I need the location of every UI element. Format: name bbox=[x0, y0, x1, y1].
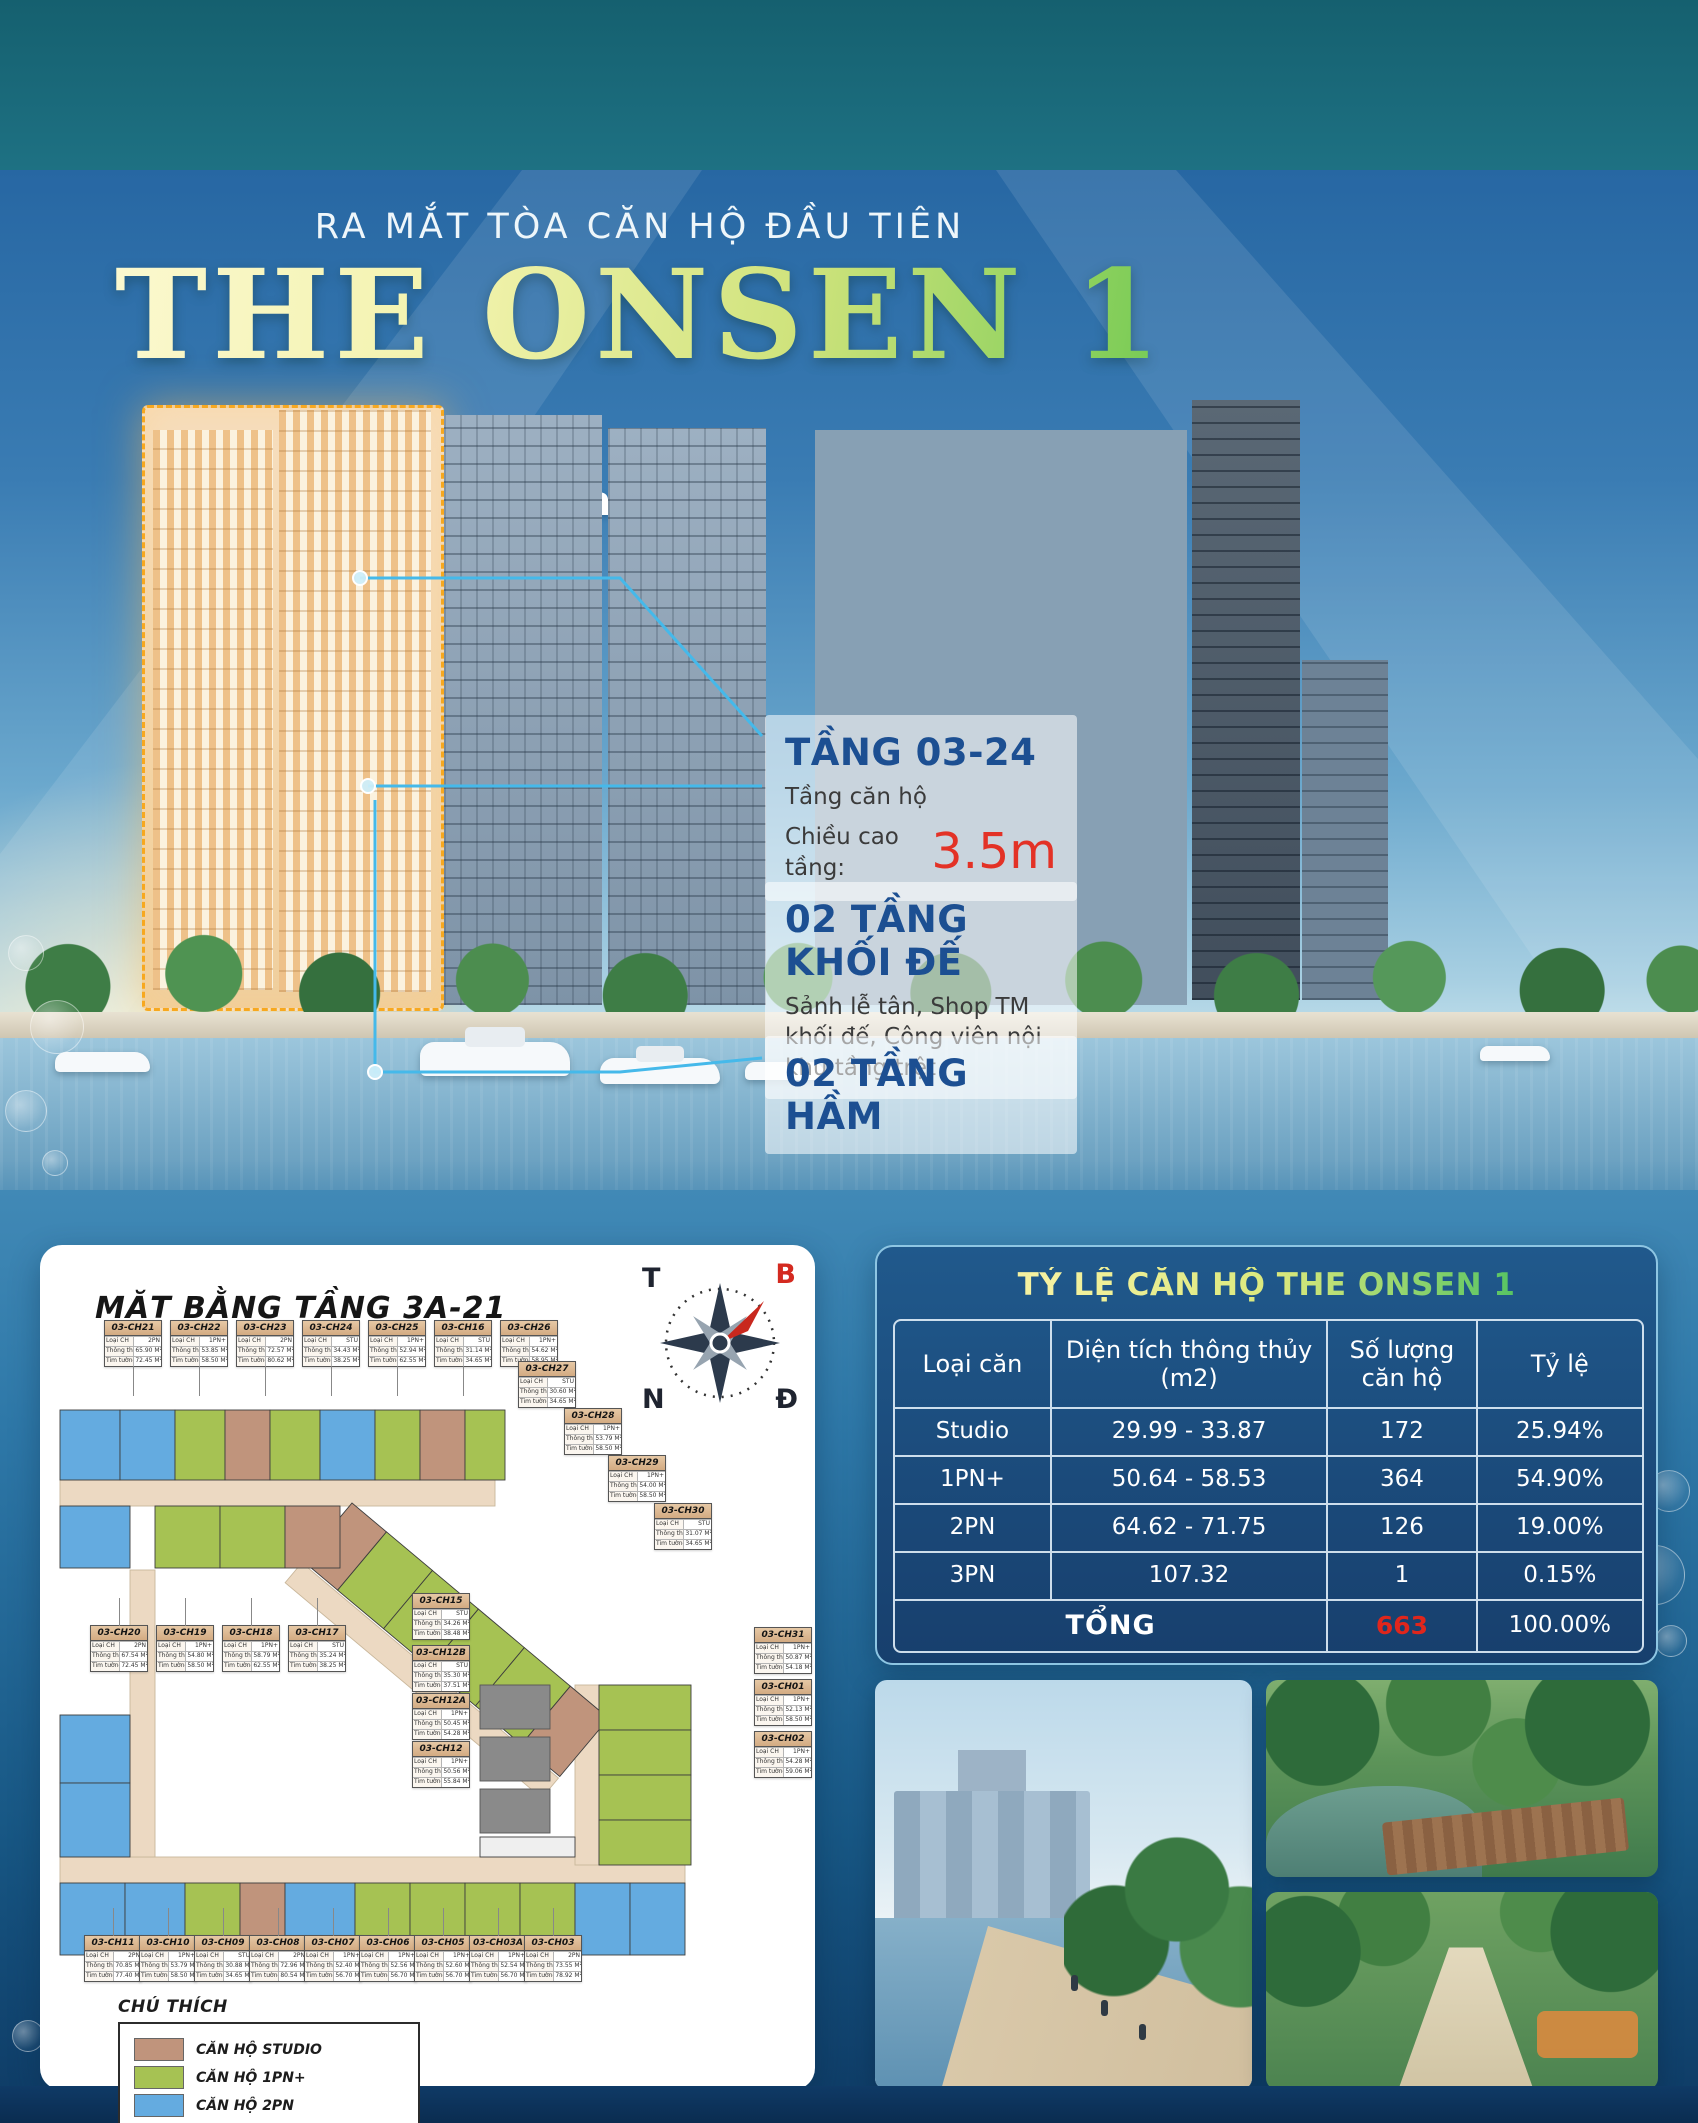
ratio-table-header: Số lượng căn hộ bbox=[1328, 1321, 1477, 1409]
floorplan-panel: MẶT BẰNG TẦNG 3A-21 T B N Đ 03-CH21Loại … bbox=[40, 1245, 815, 2090]
bubble bbox=[30, 1000, 84, 1054]
legend-label: CĂN HỘ STUDIO bbox=[196, 2042, 322, 2058]
unit-label-03-CH11: 03-CH11Loại CH2PNThông thủy70.85 M²Tim t… bbox=[84, 1935, 142, 1982]
photo-riverside-promenade bbox=[875, 1680, 1252, 2090]
unit-label-03-CH12: 03-CH12Loại CH1PN+Thông thủy50.56 M²Tim … bbox=[412, 1741, 470, 1788]
unit-label-03-CH16: 03-CH16Loại CHSTUThông thủy31.14 M²Tim t… bbox=[434, 1320, 492, 1367]
callout-basement-title: 02 TẦNG HẦM bbox=[785, 1052, 1057, 1138]
unit-label-03-CH21: 03-CH21Loại CH2PNThông thủy65.90 M²Tim t… bbox=[104, 1320, 162, 1367]
legend-swatch bbox=[134, 2038, 184, 2061]
unit-label-03-CH02: 03-CH02Loại CH1PN+Thông thủy54.28 M²Tim … bbox=[754, 1731, 812, 1778]
ratio-table-cell-ratio: 54.90% bbox=[1478, 1457, 1642, 1505]
legend-title: CHÚ THÍCH bbox=[118, 1997, 428, 2017]
legend-swatch bbox=[134, 2066, 184, 2089]
callout-podium-title: 02 TẦNG KHỐI ĐẾ bbox=[785, 898, 1057, 984]
unit-label-03-CH17: 03-CH17Loại CHSTUThông thủy35.24 M²Tim t… bbox=[288, 1625, 346, 1672]
unit-label-03-CH15: 03-CH15Loại CHSTUThông thủy34.26 M²Tim t… bbox=[412, 1593, 470, 1640]
callout-floors-title: TẦNG 03-24 bbox=[785, 731, 1057, 774]
poster-canvas: RA MẮT TÒA CĂN HỘ ĐẦU TIÊN THE ONSEN 1 T… bbox=[0, 0, 1698, 2123]
unit-label-03-CH18: 03-CH18Loại CH1PN+Thông thủy58.79 M²Tim … bbox=[222, 1625, 280, 1672]
compass-east: Đ bbox=[775, 1384, 798, 1415]
unit-label-03-CH05: 03-CH05Loại CH1PN+Thông thủy52.60 M²Tim … bbox=[414, 1935, 472, 1982]
unit-label-03-CH03A: 03-CH03ALoại CH1PN+Thông thủy52.54 M²Tim… bbox=[469, 1935, 527, 1982]
callout-floors-line1: Tầng căn hộ bbox=[785, 782, 1057, 812]
ratio-table-cell-ratio: 19.00% bbox=[1478, 1505, 1642, 1553]
unit-label-03-CH09: 03-CH09Loại CHSTUThông thủy30.88 M²Tim t… bbox=[194, 1935, 252, 1982]
bubble bbox=[5, 1090, 47, 1132]
ratio-table-cell-count: 364 bbox=[1328, 1457, 1477, 1505]
compass-north: B bbox=[775, 1259, 796, 1290]
unit-label-03-CH07: 03-CH07Loại CH1PN+Thông thủy52.40 M²Tim … bbox=[304, 1935, 362, 1982]
ratio-table-cell-area: 107.32 bbox=[1052, 1553, 1328, 1601]
ratio-table-title: TỶ LỆ CĂN HỘ THE ONSEN 1 bbox=[877, 1267, 1656, 1303]
ratio-table-panel: TỶ LỆ CĂN HỘ THE ONSEN 1 Loại cănDiện tí… bbox=[875, 1245, 1658, 1665]
unit-label-03-CH03: 03-CH03Loại CH2PNThông thủy73.55 M²Tim t… bbox=[524, 1935, 582, 1982]
legend-label: CĂN HỘ 1PN+ bbox=[196, 2070, 306, 2086]
ratio-table-cell-count: 126 bbox=[1328, 1505, 1477, 1553]
callout-floors-height-value: 3.5m bbox=[931, 820, 1057, 885]
unit-label-03-CH27: 03-CH27Loại CHSTUThông thủy30.60 M²Tim t… bbox=[518, 1361, 576, 1408]
legend-row: CĂN HỘ 2PN bbox=[134, 2094, 404, 2117]
legend-row: CĂN HỘ 1PN+ bbox=[134, 2066, 404, 2089]
bubble bbox=[8, 935, 44, 971]
unit-label-03-CH30: 03-CH30Loại CHSTUThông thủy31.07 M²Tim t… bbox=[654, 1503, 712, 1550]
unit-label-03-CH10: 03-CH10Loại CH1PN+Thông thủy53.79 M²Tim … bbox=[139, 1935, 197, 1982]
ratio-table-cell-area: 50.64 - 58.53 bbox=[1052, 1457, 1328, 1505]
ratio-table-cell-count: 172 bbox=[1328, 1409, 1477, 1457]
floorplan-legend: CHÚ THÍCH CĂN HỘ STUDIOCĂN HỘ 1PN+CĂN HỘ… bbox=[118, 1997, 428, 2123]
unit-label-03-CH28: 03-CH28Loại CH1PN+Thông thủy53.79 M²Tim … bbox=[564, 1408, 622, 1455]
bubble bbox=[1655, 1625, 1687, 1657]
legend-row: CĂN HỘ STUDIO bbox=[134, 2038, 404, 2061]
legend-swatch bbox=[134, 2094, 184, 2117]
ratio-table-total-ratio: 100.00% bbox=[1478, 1601, 1642, 1651]
compass-south: N bbox=[642, 1384, 665, 1415]
ratio-table-cell-count: 1 bbox=[1328, 1553, 1477, 1601]
unit-label-03-CH12A: 03-CH12ALoại CH1PN+Thông thủy50.45 M²Tim… bbox=[412, 1693, 470, 1740]
unit-label-03-CH12B: 03-CH12BLoại CHSTUThông thủy35.30 M²Tim … bbox=[412, 1645, 470, 1692]
unit-label-03-CH08: 03-CH08Loại CH2PNThông thủy72.96 M²Tim t… bbox=[249, 1935, 307, 1982]
callout-basement: 02 TẦNG HẦM bbox=[765, 1036, 1077, 1154]
legend-items: CĂN HỘ STUDIOCĂN HỘ 1PN+CĂN HỘ 2PN bbox=[118, 2022, 420, 2123]
ratio-table: Loại cănDiện tích thông thủy (m2)Số lượn… bbox=[893, 1319, 1644, 1653]
unit-label-03-CH01: 03-CH01Loại CH1PN+Thông thủy52.13 M²Tim … bbox=[754, 1679, 812, 1726]
compass-west: T bbox=[642, 1263, 660, 1294]
legend-label: CĂN HỘ 2PN bbox=[196, 2098, 294, 2114]
ratio-table-cell-area: 64.62 - 71.75 bbox=[1052, 1505, 1328, 1553]
unit-label-03-CH24: 03-CH24Loại CHSTUThông thủy34.43 M²Tim t… bbox=[302, 1320, 360, 1367]
photo-park-playground bbox=[1266, 1892, 1658, 2090]
ratio-table-cell-type: Studio bbox=[895, 1409, 1052, 1457]
ratio-table-cell-type: 1PN+ bbox=[895, 1457, 1052, 1505]
ratio-table-header: Tỷ lệ bbox=[1478, 1321, 1642, 1409]
compass-rose: T B N Đ bbox=[640, 1259, 800, 1419]
ratio-table-cell-type: 2PN bbox=[895, 1505, 1052, 1553]
unit-label-03-CH23: 03-CH23Loại CH2PNThông thủy72.57 M²Tim t… bbox=[236, 1320, 294, 1367]
ratio-table-cell-type: 3PN bbox=[895, 1553, 1052, 1601]
ratio-table-header: Loại căn bbox=[895, 1321, 1052, 1409]
unit-label-03-CH19: 03-CH19Loại CH1PN+Thông thủy54.80 M²Tim … bbox=[156, 1625, 214, 1672]
ratio-table-cell-ratio: 0.15% bbox=[1478, 1553, 1642, 1601]
unit-label-03-CH26: 03-CH26Loại CH1PN+Thông thủy54.62 M²Tim … bbox=[500, 1320, 558, 1367]
unit-label-03-CH29: 03-CH29Loại CH1PN+Thông thủy54.00 M²Tim … bbox=[608, 1455, 666, 1502]
unit-label-03-CH22: 03-CH22Loại CH1PN+Thông thủy53.85 M²Tim … bbox=[170, 1320, 228, 1367]
callout-floors: TẦNG 03-24 Tầng căn hộ Chiều cao tầng: 3… bbox=[765, 715, 1077, 901]
ratio-table-cell-ratio: 25.94% bbox=[1478, 1409, 1642, 1457]
callout-floors-height-label: Chiều cao tầng: bbox=[785, 822, 919, 883]
ratio-table-total-label: TỔNG bbox=[895, 1601, 1328, 1651]
unit-label-03-CH31: 03-CH31Loại CH1PN+Thông thủy50.87 M²Tim … bbox=[754, 1627, 812, 1674]
ratio-table-cell-area: 29.99 - 33.87 bbox=[1052, 1409, 1328, 1457]
photo-park-boardwalk bbox=[1266, 1680, 1658, 1877]
bubble bbox=[42, 1150, 68, 1176]
unit-label-03-CH20: 03-CH20Loại CH2PNThông thủy67.54 M²Tim t… bbox=[90, 1625, 148, 1672]
ratio-table-header: Diện tích thông thủy (m2) bbox=[1052, 1321, 1328, 1409]
unit-label-03-CH25: 03-CH25Loại CH1PN+Thông thủy52.94 M²Tim … bbox=[368, 1320, 426, 1367]
unit-label-03-CH06: 03-CH06Loại CH1PN+Thông thủy52.56 M²Tim … bbox=[359, 1935, 417, 1982]
ratio-table-total-count: 663 bbox=[1328, 1601, 1477, 1651]
